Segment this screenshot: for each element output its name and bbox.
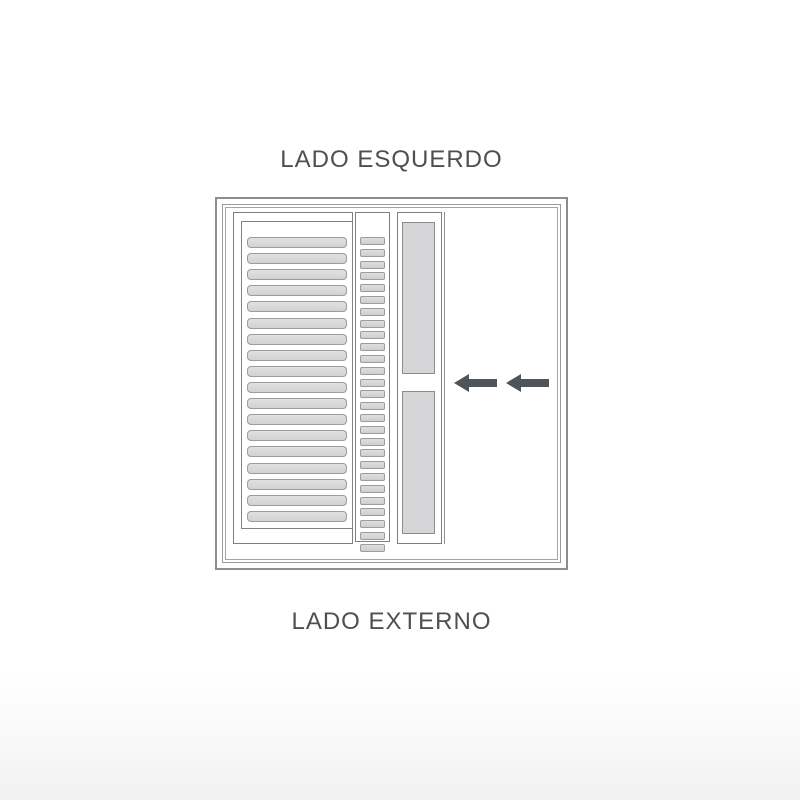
louver-slat [360, 402, 385, 410]
louver-slat [247, 285, 347, 296]
louver-slat [247, 237, 347, 248]
louver-slat [360, 438, 385, 446]
wide-shutter-sash [233, 212, 353, 544]
narrow-louver-panel [355, 212, 390, 542]
louver-slat [247, 479, 347, 490]
louver-slat [247, 366, 347, 377]
louver-slat [247, 495, 347, 506]
glass-pane-lower [402, 391, 435, 534]
diagram-canvas: LADO ESQUERDO LADO EXTERNO [0, 0, 800, 800]
louver-slat [247, 414, 347, 425]
arrow-shaft [519, 379, 549, 387]
louver-slat [360, 426, 385, 434]
louver-slat [360, 390, 385, 398]
louver-slat [360, 532, 385, 540]
louver-slat [247, 253, 347, 264]
louver-slat [360, 379, 385, 387]
louver-slat [247, 382, 347, 393]
louver-slat [360, 320, 385, 328]
louver-slat [360, 544, 385, 552]
louver-slat [360, 449, 385, 457]
louver-slat [360, 296, 385, 304]
louver-slat [247, 511, 347, 522]
louver-slat [360, 308, 385, 316]
arrow-shaft [467, 379, 497, 387]
louver-slat [247, 301, 347, 312]
louver-slat [360, 284, 385, 292]
sash-track-line [444, 212, 445, 544]
louver-slat [360, 367, 385, 375]
louver-slat [360, 331, 385, 339]
louver-slat [360, 272, 385, 280]
top-side-label: LADO ESQUERDO [215, 146, 568, 174]
louver-slat [360, 414, 385, 422]
louver-slat [247, 463, 347, 474]
louver-slat [360, 237, 385, 245]
louver-slat [360, 520, 385, 528]
louver-slat [360, 485, 385, 493]
left-arrow-icon [506, 374, 549, 392]
louver-slat [247, 318, 347, 329]
louver-slat [360, 461, 385, 469]
left-arrow-icon [454, 374, 497, 392]
louver-slat [247, 398, 347, 409]
louver-slat [360, 261, 385, 269]
louver-slat [360, 355, 385, 363]
louver-slat [360, 249, 385, 257]
louver-slat [247, 334, 347, 345]
louver-slat [247, 350, 347, 361]
louver-slat [247, 446, 347, 457]
bottom-side-label: LADO EXTERNO [215, 608, 568, 636]
louver-slat [360, 508, 385, 516]
louver-slat [247, 269, 347, 280]
glass-sash-panel [397, 212, 442, 544]
louver-slat [360, 343, 385, 351]
louver-slat [360, 473, 385, 481]
glass-pane-upper [402, 222, 435, 374]
louver-slat [247, 430, 347, 441]
louver-slat [360, 497, 385, 505]
wide-louver-panel [241, 221, 353, 529]
